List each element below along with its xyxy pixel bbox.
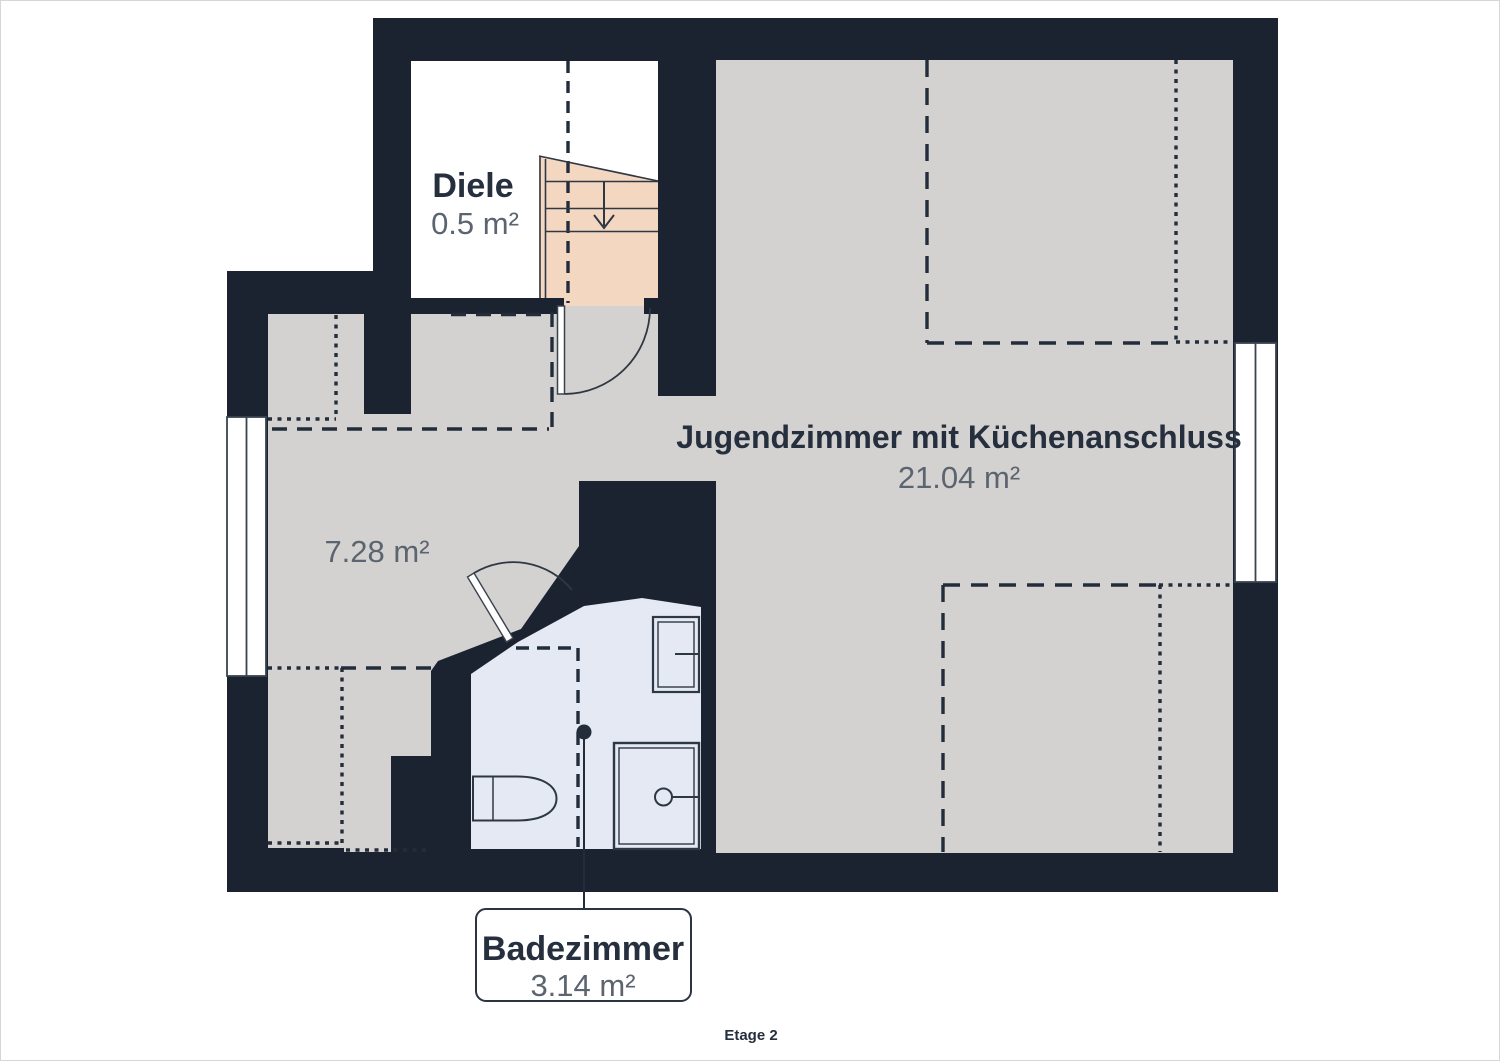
badezimmer-room-name: Badezimmer [482,930,684,968]
floor-level-label: Etage 2 [724,1027,777,1044]
jugendzimmer-room-area: 21.04 m² [898,460,1020,495]
floorplan-canvas: Diele 0.5 m² Jugendzimmer mit Küchenansc… [0,0,1500,1061]
corridor-room-area: 7.28 m² [324,534,429,569]
window-right [1235,343,1276,582]
leader-dot [577,725,592,740]
window-left [227,417,266,676]
jugendzimmer-room-name: Jugendzimmer mit Küchenanschluss [676,419,1241,455]
diele-room-area: 0.5 m² [431,206,519,241]
floorplan-drawing: Diele 0.5 m² Jugendzimmer mit Küchenansc… [1,1,1500,1061]
jugendzimmer-floor [716,60,1233,853]
diele-room-name: Diele [432,167,513,205]
door-leaf [558,306,565,394]
badezimmer-label-box: Badezimmer 3.14 m² [476,909,691,1003]
badezimmer-room-area: 3.14 m² [530,968,635,1003]
